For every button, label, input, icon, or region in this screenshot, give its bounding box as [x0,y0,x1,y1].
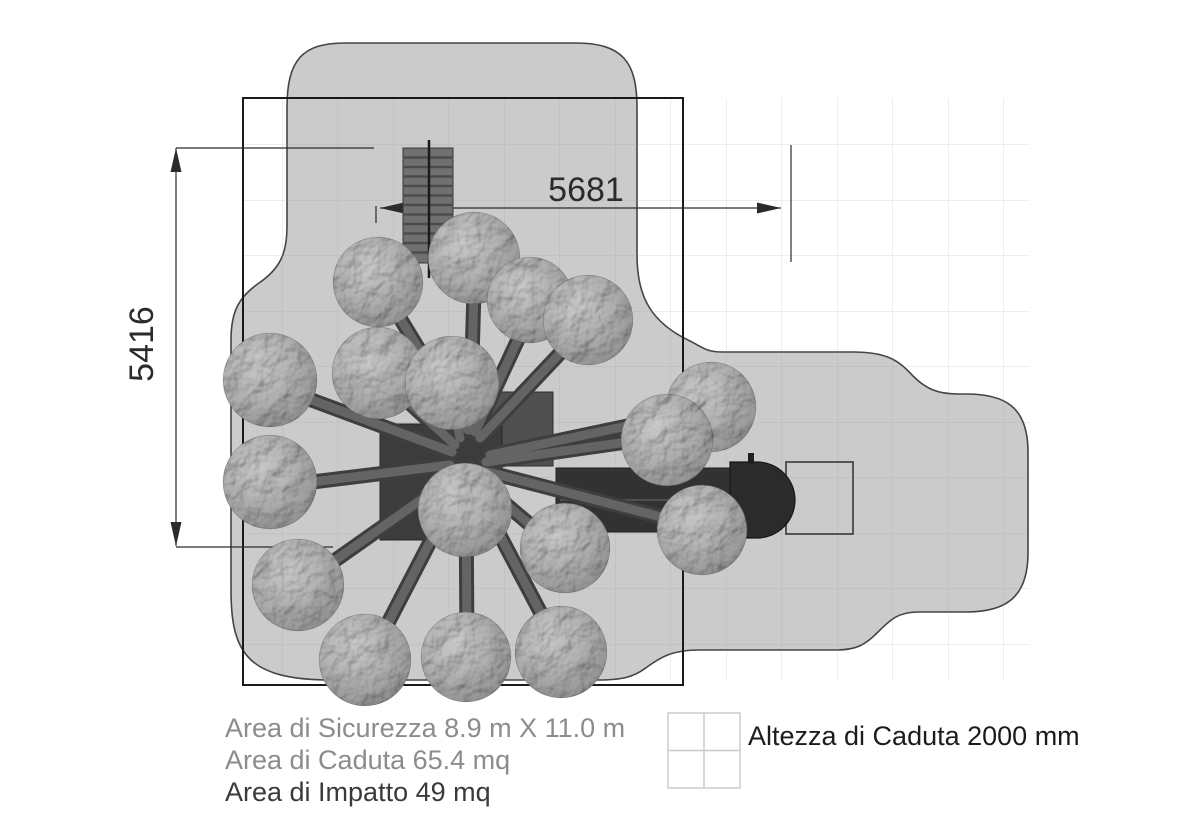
play-ball [421,612,511,702]
play-ball [223,435,317,529]
play-ball [520,503,610,593]
play-ball [418,463,512,557]
legend: Area di Sicurezza 8.9 m X 11.0 m Area di… [225,713,1080,807]
legend-impact-area: Area di Impatto 49 mq [225,777,491,807]
play-ball [621,394,713,486]
legend-security-area: Area di Sicurezza 8.9 m X 11.0 m [225,713,625,743]
play-ball [252,539,344,631]
legend-fall-area: Area di Caduta 65.4 mq [225,745,510,775]
play-ball [543,275,633,365]
legend-fall-height: Altezza di Caduta 2000 mm [748,721,1080,751]
play-ball [333,237,423,327]
dimension-width-label: 5681 [548,171,624,209]
arrow-down-icon [171,522,182,546]
play-ball [657,485,747,575]
slide-tube-tab [748,453,754,464]
play-ball [223,333,317,427]
plan-drawing: 5681 5416 [0,0,1187,827]
arrow-up-icon [171,148,182,172]
play-ball [515,606,607,698]
plan-canvas: 5681 5416 [0,0,1187,827]
play-ball [405,336,499,430]
surface-grid-icon [668,713,740,788]
dimension-height-label: 5416 [123,306,161,382]
play-ball [319,614,411,706]
